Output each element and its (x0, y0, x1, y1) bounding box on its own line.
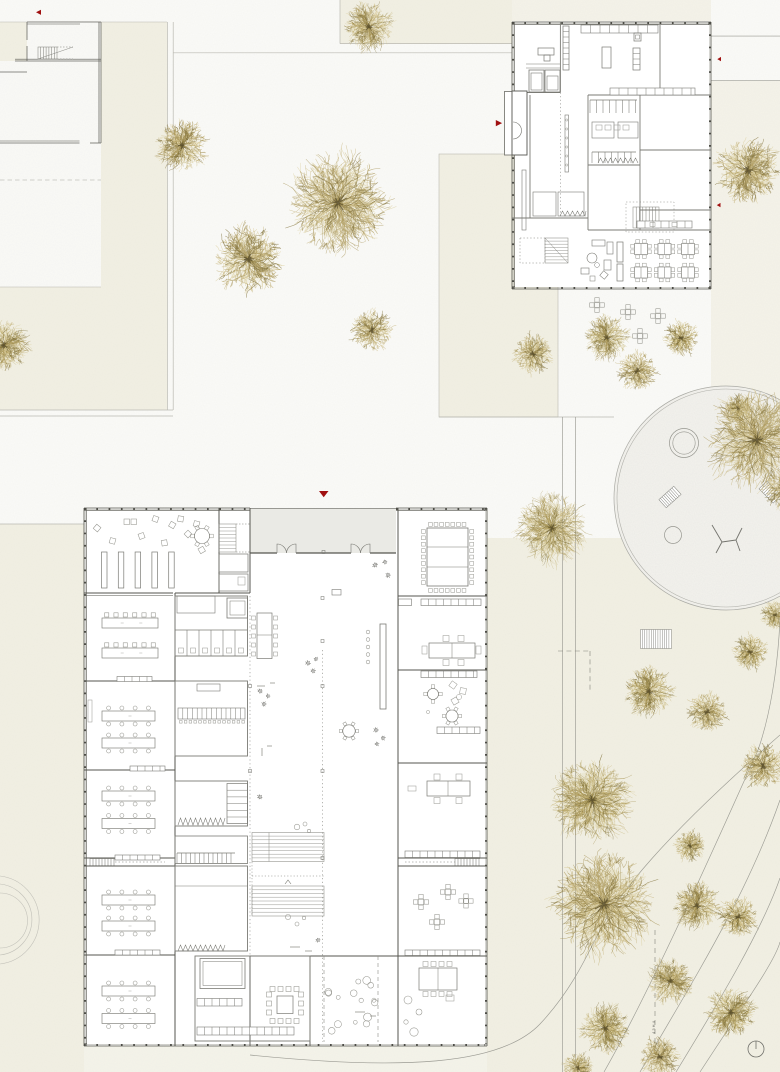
svg-text:4 3 H 4: 4 3 H 4 (651, 1020, 656, 1034)
